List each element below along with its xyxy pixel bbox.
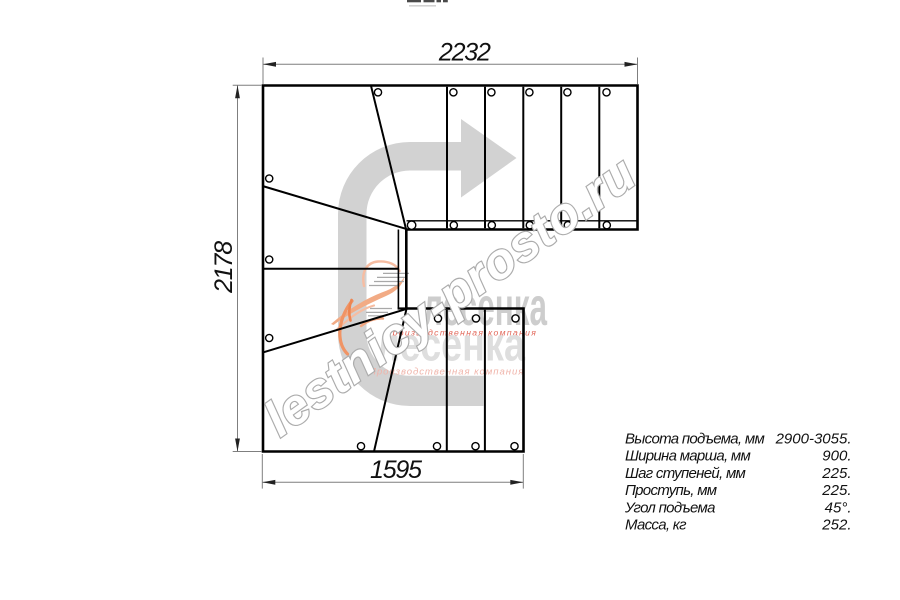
- svg-text:225.: 225.: [821, 482, 851, 499]
- svg-text:Масса, кг: Масса, кг: [625, 517, 687, 534]
- svg-text:Угол подъема: Угол подъема: [624, 499, 715, 516]
- svg-text:252.: 252.: [821, 517, 851, 534]
- svg-text:Проступь, мм: Проступь, мм: [625, 482, 717, 499]
- svg-text:Ширина марша, мм: Ширина марша, мм: [625, 448, 750, 465]
- svg-text:1595: 1595: [370, 456, 422, 484]
- svg-text:900.: 900.: [822, 448, 851, 465]
- svg-text:2178: 2178: [210, 241, 238, 294]
- svg-text:225.: 225.: [821, 465, 851, 482]
- svg-text:2900-3055.: 2900-3055.: [775, 430, 852, 447]
- svg-text:2232: 2232: [438, 39, 491, 67]
- svg-text:45°.: 45°.: [825, 499, 852, 516]
- svg-text:Высота подъема, мм: Высота подъема, мм: [625, 430, 764, 447]
- svg-text:Шаг ступеней, мм: Шаг ступеней, мм: [625, 465, 746, 482]
